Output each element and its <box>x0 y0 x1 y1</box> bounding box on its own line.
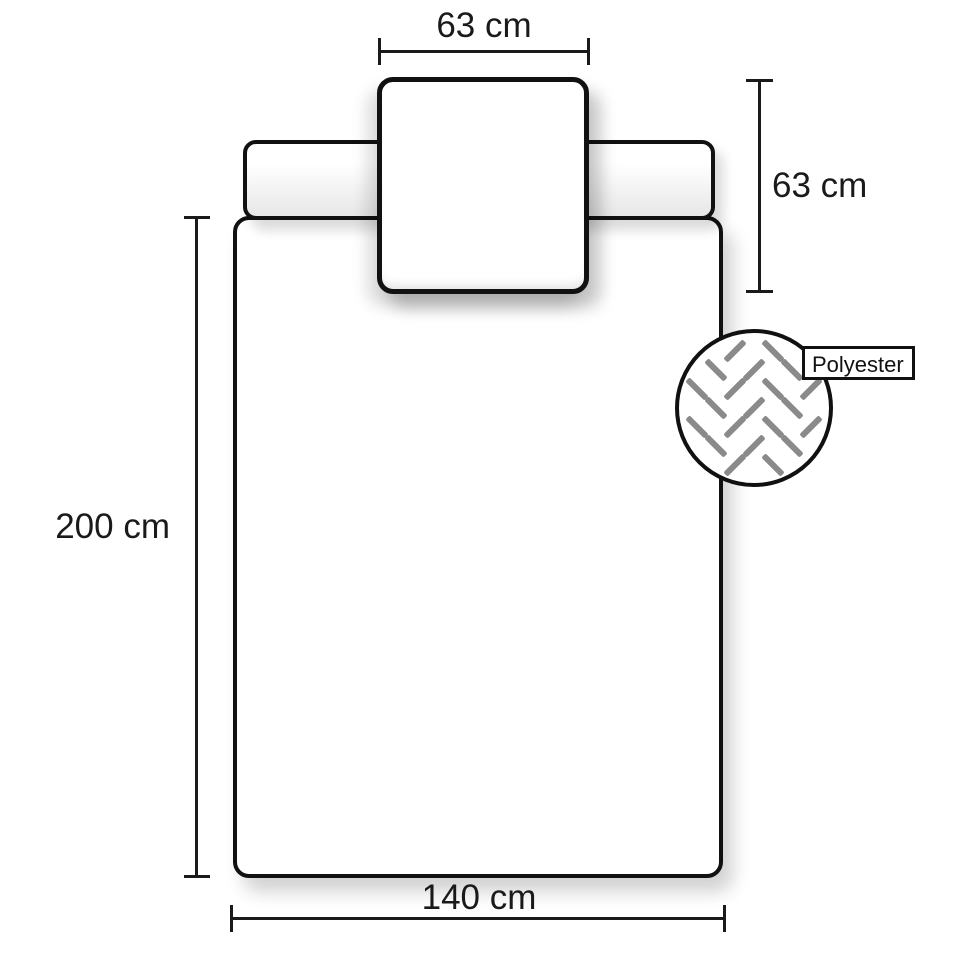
left-dimension-line <box>195 217 198 877</box>
duvet-length-label: 200 cm <box>30 508 170 546</box>
duvet-cover-shape <box>233 216 723 878</box>
right-dimension-line <box>758 80 761 292</box>
left-dimension-bottom-tick <box>184 875 210 878</box>
right-dimension-bottom-tick <box>746 290 773 293</box>
duvet-width-label: 140 cm <box>379 879 579 917</box>
pillow-height-label: 63 cm <box>772 167 867 205</box>
pillow-width-label: 63 cm <box>384 7 584 45</box>
bedding-dimensions-diagram: 63 cm 63 cm 200 cm 140 cm Polyester <box>0 0 960 960</box>
top-dimension-right-tick <box>587 38 590 65</box>
material-label: Polyester <box>802 346 915 380</box>
top-dimension-line <box>379 50 589 53</box>
bottom-dimension-right-tick <box>723 905 726 932</box>
pillowcase-shape <box>377 77 589 294</box>
bottom-dimension-line <box>231 917 726 920</box>
